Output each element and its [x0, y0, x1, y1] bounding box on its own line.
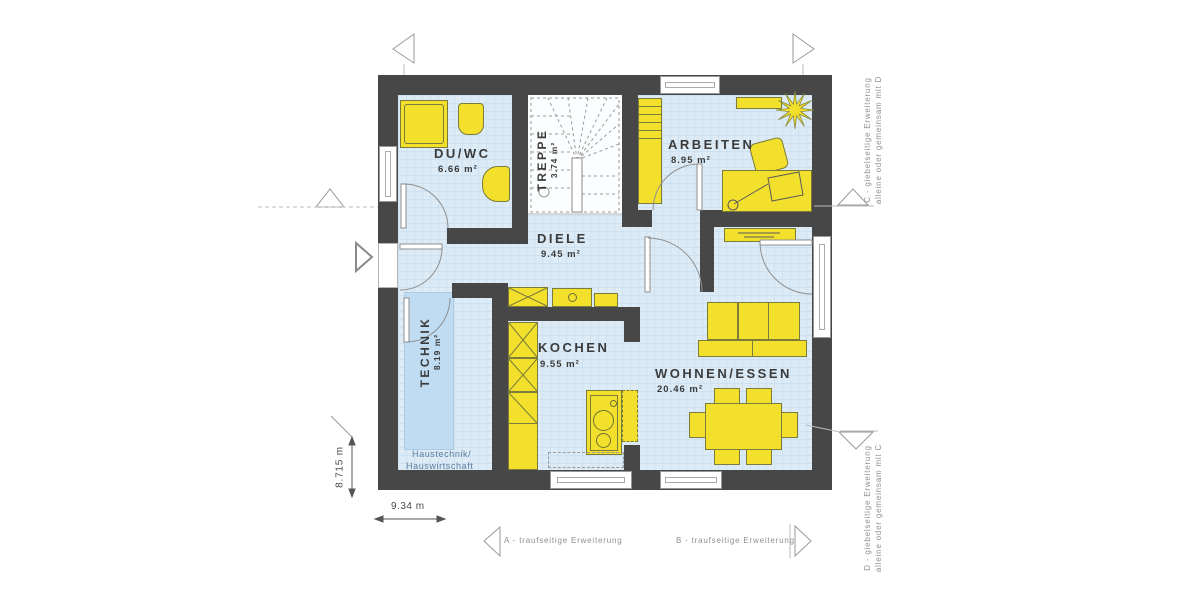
hall-small-box — [594, 293, 618, 307]
annotation-a: A - traufseitige Erweiterung — [504, 536, 622, 545]
marker-left — [316, 189, 344, 207]
room-area-diele: 9.45 m² — [541, 249, 581, 260]
wall-duwc-bottom — [447, 228, 528, 244]
annotation-c-line1: C - giebelseitige Erweiterung — [862, 76, 873, 204]
wall-arbeiten-bottom-right — [700, 210, 812, 227]
entrance-opening — [378, 243, 398, 288]
window-kitchen — [550, 471, 632, 489]
wall-kitchen-top — [508, 307, 640, 321]
window-duwc — [379, 146, 397, 202]
kitchen-cabinet-seg1 — [508, 322, 538, 358]
sideboard — [724, 228, 796, 242]
shower-inner — [404, 104, 444, 144]
room-area-kochen: 9.55 m² — [540, 359, 580, 370]
hall-sideboard-knob — [568, 293, 577, 302]
annotation-c-line2: alleine oder gemeinsam mit D — [873, 76, 884, 204]
window-top — [660, 76, 720, 94]
room-area-duwc: 6.66 m² — [438, 164, 478, 175]
marker-bottom-b — [795, 526, 811, 556]
room-label-technik: TECHNIK — [418, 317, 432, 388]
room-label-diele: DIELE — [537, 231, 588, 246]
room-area-technik: 8.19 m² — [432, 317, 442, 388]
wall-duwc-right — [512, 95, 528, 228]
floor-plan-canvas: DU/WC 6.66 m² TREPPE 3.74 m² ARBEITEN 8.… — [0, 0, 1200, 600]
technik-note-2: Hauswirtschaft — [406, 461, 473, 471]
kitchen-counter-overhang — [622, 390, 638, 442]
office-desk — [722, 170, 812, 212]
room-label-arbeiten: ARBEITEN — [668, 137, 754, 152]
marker-top-left — [393, 34, 414, 63]
wall-top — [378, 75, 832, 95]
room-label-treppe-block: TREPPE 3.74 m² — [535, 128, 559, 191]
wall-treppe-right — [622, 95, 638, 215]
wall-corridor-stub — [700, 227, 714, 292]
kitchen-cabinet-seg3 — [508, 392, 538, 424]
dining-table — [705, 403, 782, 450]
kitchen-planned-counter — [548, 452, 624, 468]
annotation-b: B - traufseitige Erweiterung — [676, 536, 795, 545]
hall-cabinet-x — [508, 287, 548, 307]
room-area-treppe: 3.74 m² — [549, 128, 559, 191]
wall-arbeiten-bottom-left — [622, 210, 652, 227]
room-area-arbeiten: 8.95 m² — [671, 155, 711, 166]
annotation-c-block: C - giebelseitige Erweiterung alleine od… — [862, 76, 884, 204]
terrace-door — [813, 236, 831, 338]
office-shelf — [638, 98, 662, 204]
marker-top-right — [793, 34, 814, 63]
sofa-cushion-1 — [707, 302, 738, 340]
sink-bowl-small — [596, 433, 611, 448]
dimension-vertical-text: 8.715 m — [335, 446, 346, 488]
bathroom-sink — [458, 103, 484, 135]
room-label-wohnen: WOHNEN/ESSEN — [655, 366, 792, 381]
sink-tap — [610, 400, 617, 407]
office-top-shelf — [736, 97, 782, 109]
wall-kitchen-right-lower — [624, 445, 640, 470]
wall-technik-right — [492, 283, 508, 470]
sofa-cushion-2 — [738, 302, 769, 340]
sink-bowl-large — [593, 410, 614, 431]
room-area-wohnen: 20.46 m² — [657, 384, 703, 395]
entrance-arrow — [356, 243, 372, 271]
annotation-d-line2: alleine oder gemeinsam mit C — [873, 444, 884, 572]
toilet — [482, 166, 510, 202]
dining-chair-right — [780, 412, 798, 438]
room-label-duwc: DU/WC — [434, 146, 491, 161]
marker-bottom-a — [484, 527, 500, 556]
dimension-horizontal — [375, 516, 445, 522]
kitchen-cabinet-seg2 — [508, 358, 538, 392]
wall-kitchen-right-upper — [624, 321, 640, 342]
annotation-d-line1: D - giebelseitige Erweiterung — [862, 444, 873, 572]
wall-left-lower — [378, 288, 398, 470]
window-living — [660, 471, 722, 489]
annotation-d-block: D - giebelseitige Erweiterung alleine od… — [862, 444, 884, 572]
dimension-horizontal-text: 9.34 m — [391, 501, 425, 512]
technik-note-1: Haustechnik/ — [412, 449, 471, 459]
room-label-kochen: KOCHEN — [538, 340, 609, 355]
sofa-seat-split — [698, 340, 753, 357]
room-label-treppe: TREPPE — [535, 128, 549, 191]
room-label-technik-block: TECHNIK 8.19 m² — [418, 317, 442, 388]
